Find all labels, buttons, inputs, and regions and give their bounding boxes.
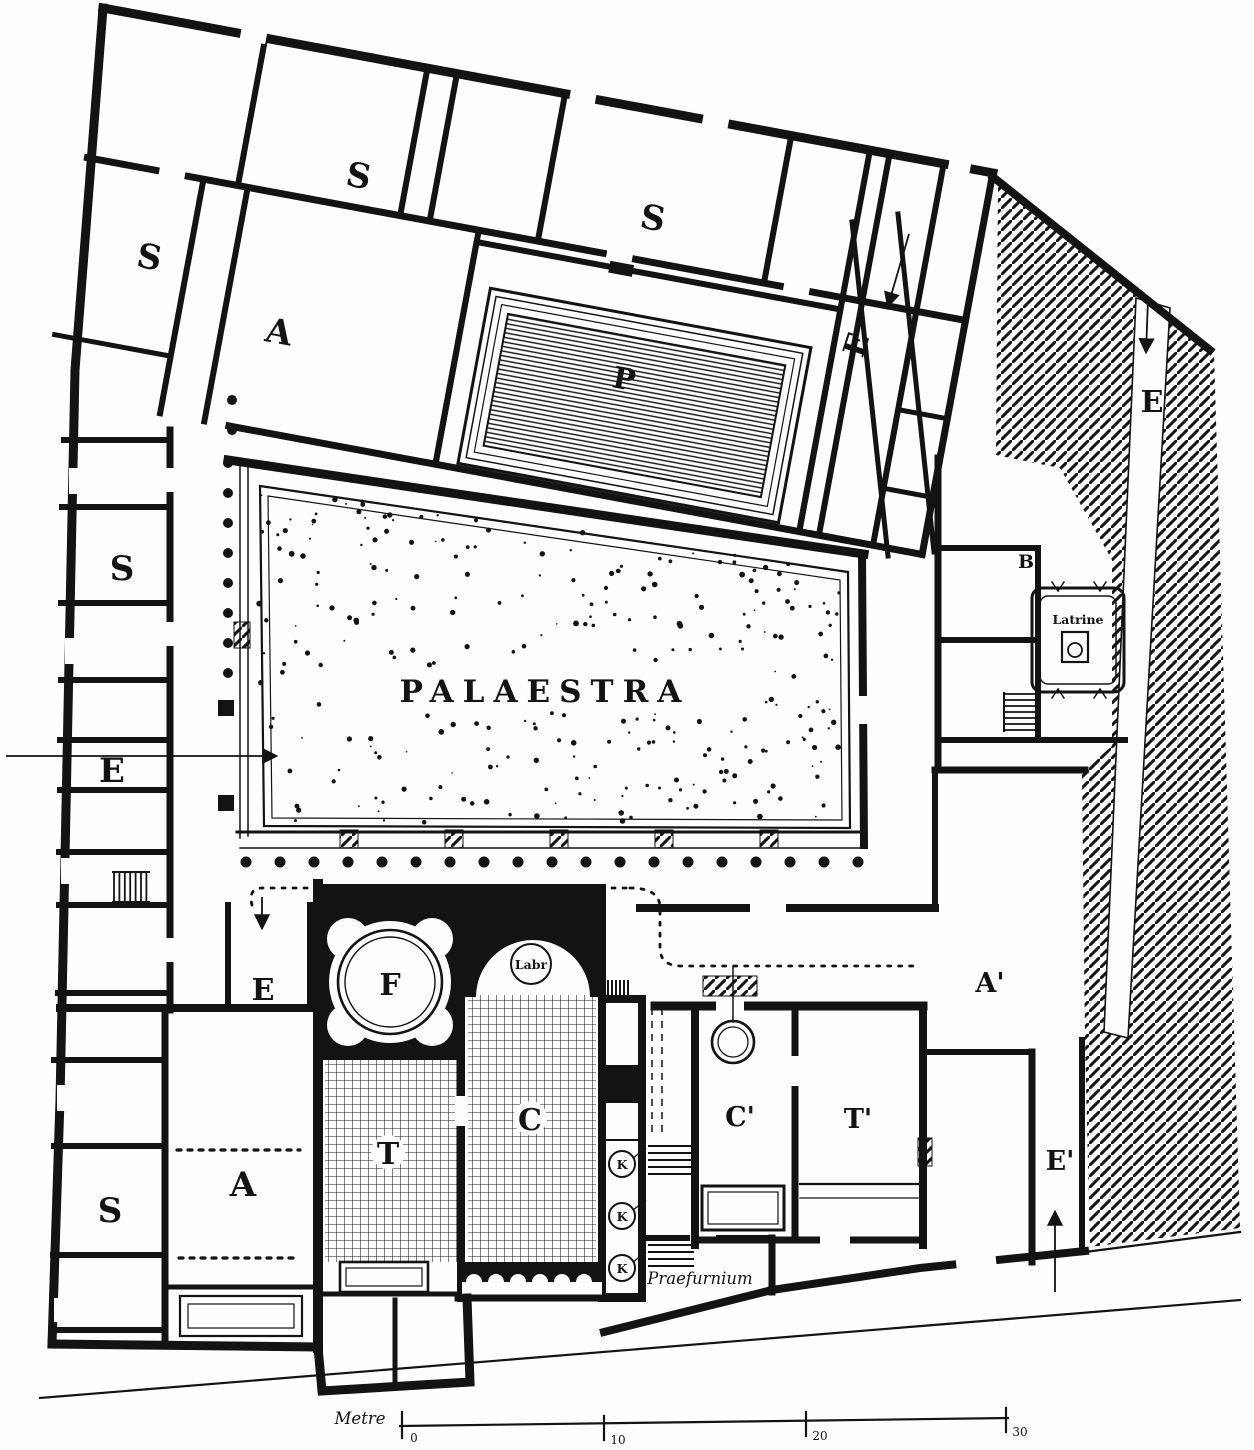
label-boiler-1: K [617,1157,629,1172]
label-entrance-inner: E [252,973,275,1008]
label-entrance-southeast: E' [1046,1146,1075,1177]
scale-bar: Metre 0 10 20 30 [334,1408,1028,1447]
scale-tick-10: 10 [610,1433,625,1447]
label-shop-west: S [110,549,135,589]
label-entrance-northeast: E [1141,385,1164,420]
label-shop-north-3: S [637,197,668,241]
tepidarium-basin [340,1262,428,1292]
label-boiler-2: K [617,1209,629,1224]
label-womens-caldarium: C' [725,1102,755,1133]
label-entrance-west: E [99,751,125,791]
frigidarium-pool: F [327,918,453,1046]
entrance-inner: E [228,897,310,1008]
label-labrum: Labr [515,957,548,972]
north-wing: S S S A P [32,2,994,554]
label-praefurnium: Praefurnium [646,1269,752,1288]
label-shop-north-2: S [343,154,374,198]
court-and-entrance-se: A' E' [925,968,1082,1292]
scale-tick-30: 30 [1012,1425,1027,1439]
door-sill [918,1138,932,1166]
scale-unit-label: Metre [334,1409,386,1428]
label-court: A' [974,968,1004,999]
door-sills [234,622,778,848]
label-frigidarium: F [379,968,400,1003]
label-latrine: Latrine [1052,612,1103,627]
palaestra: PALAESTRA [218,395,871,868]
label-boiler-3: K [617,1261,629,1276]
label-room-b: B [1018,551,1034,573]
floor-plan-page: E S S [0,0,1254,1450]
staircase-east [1004,692,1040,732]
label-atrium-north: A [261,310,296,354]
label-entrance-north: E [837,329,877,362]
door-sill [703,976,757,996]
palaestra-stipple [256,494,841,824]
staircase-west [112,872,150,902]
mens-baths: F Labr T C [318,884,772,1348]
label-shop-southwest: S [98,1191,123,1231]
label-womens-tepidarium: T' [844,1104,872,1135]
scale-tick-0: 0 [410,1431,418,1445]
scale-tick-20: 20 [812,1429,827,1443]
label-atrium-south: A [229,1165,257,1205]
label-shop-north-1: S [134,236,165,280]
label-caldarium: C [518,1103,542,1138]
label-tepidarium: T [377,1137,400,1172]
label-palaestra: PALAESTRA [400,674,691,710]
latrine-room [1032,588,1124,692]
baths-floor-plan: E S S [0,0,1254,1450]
